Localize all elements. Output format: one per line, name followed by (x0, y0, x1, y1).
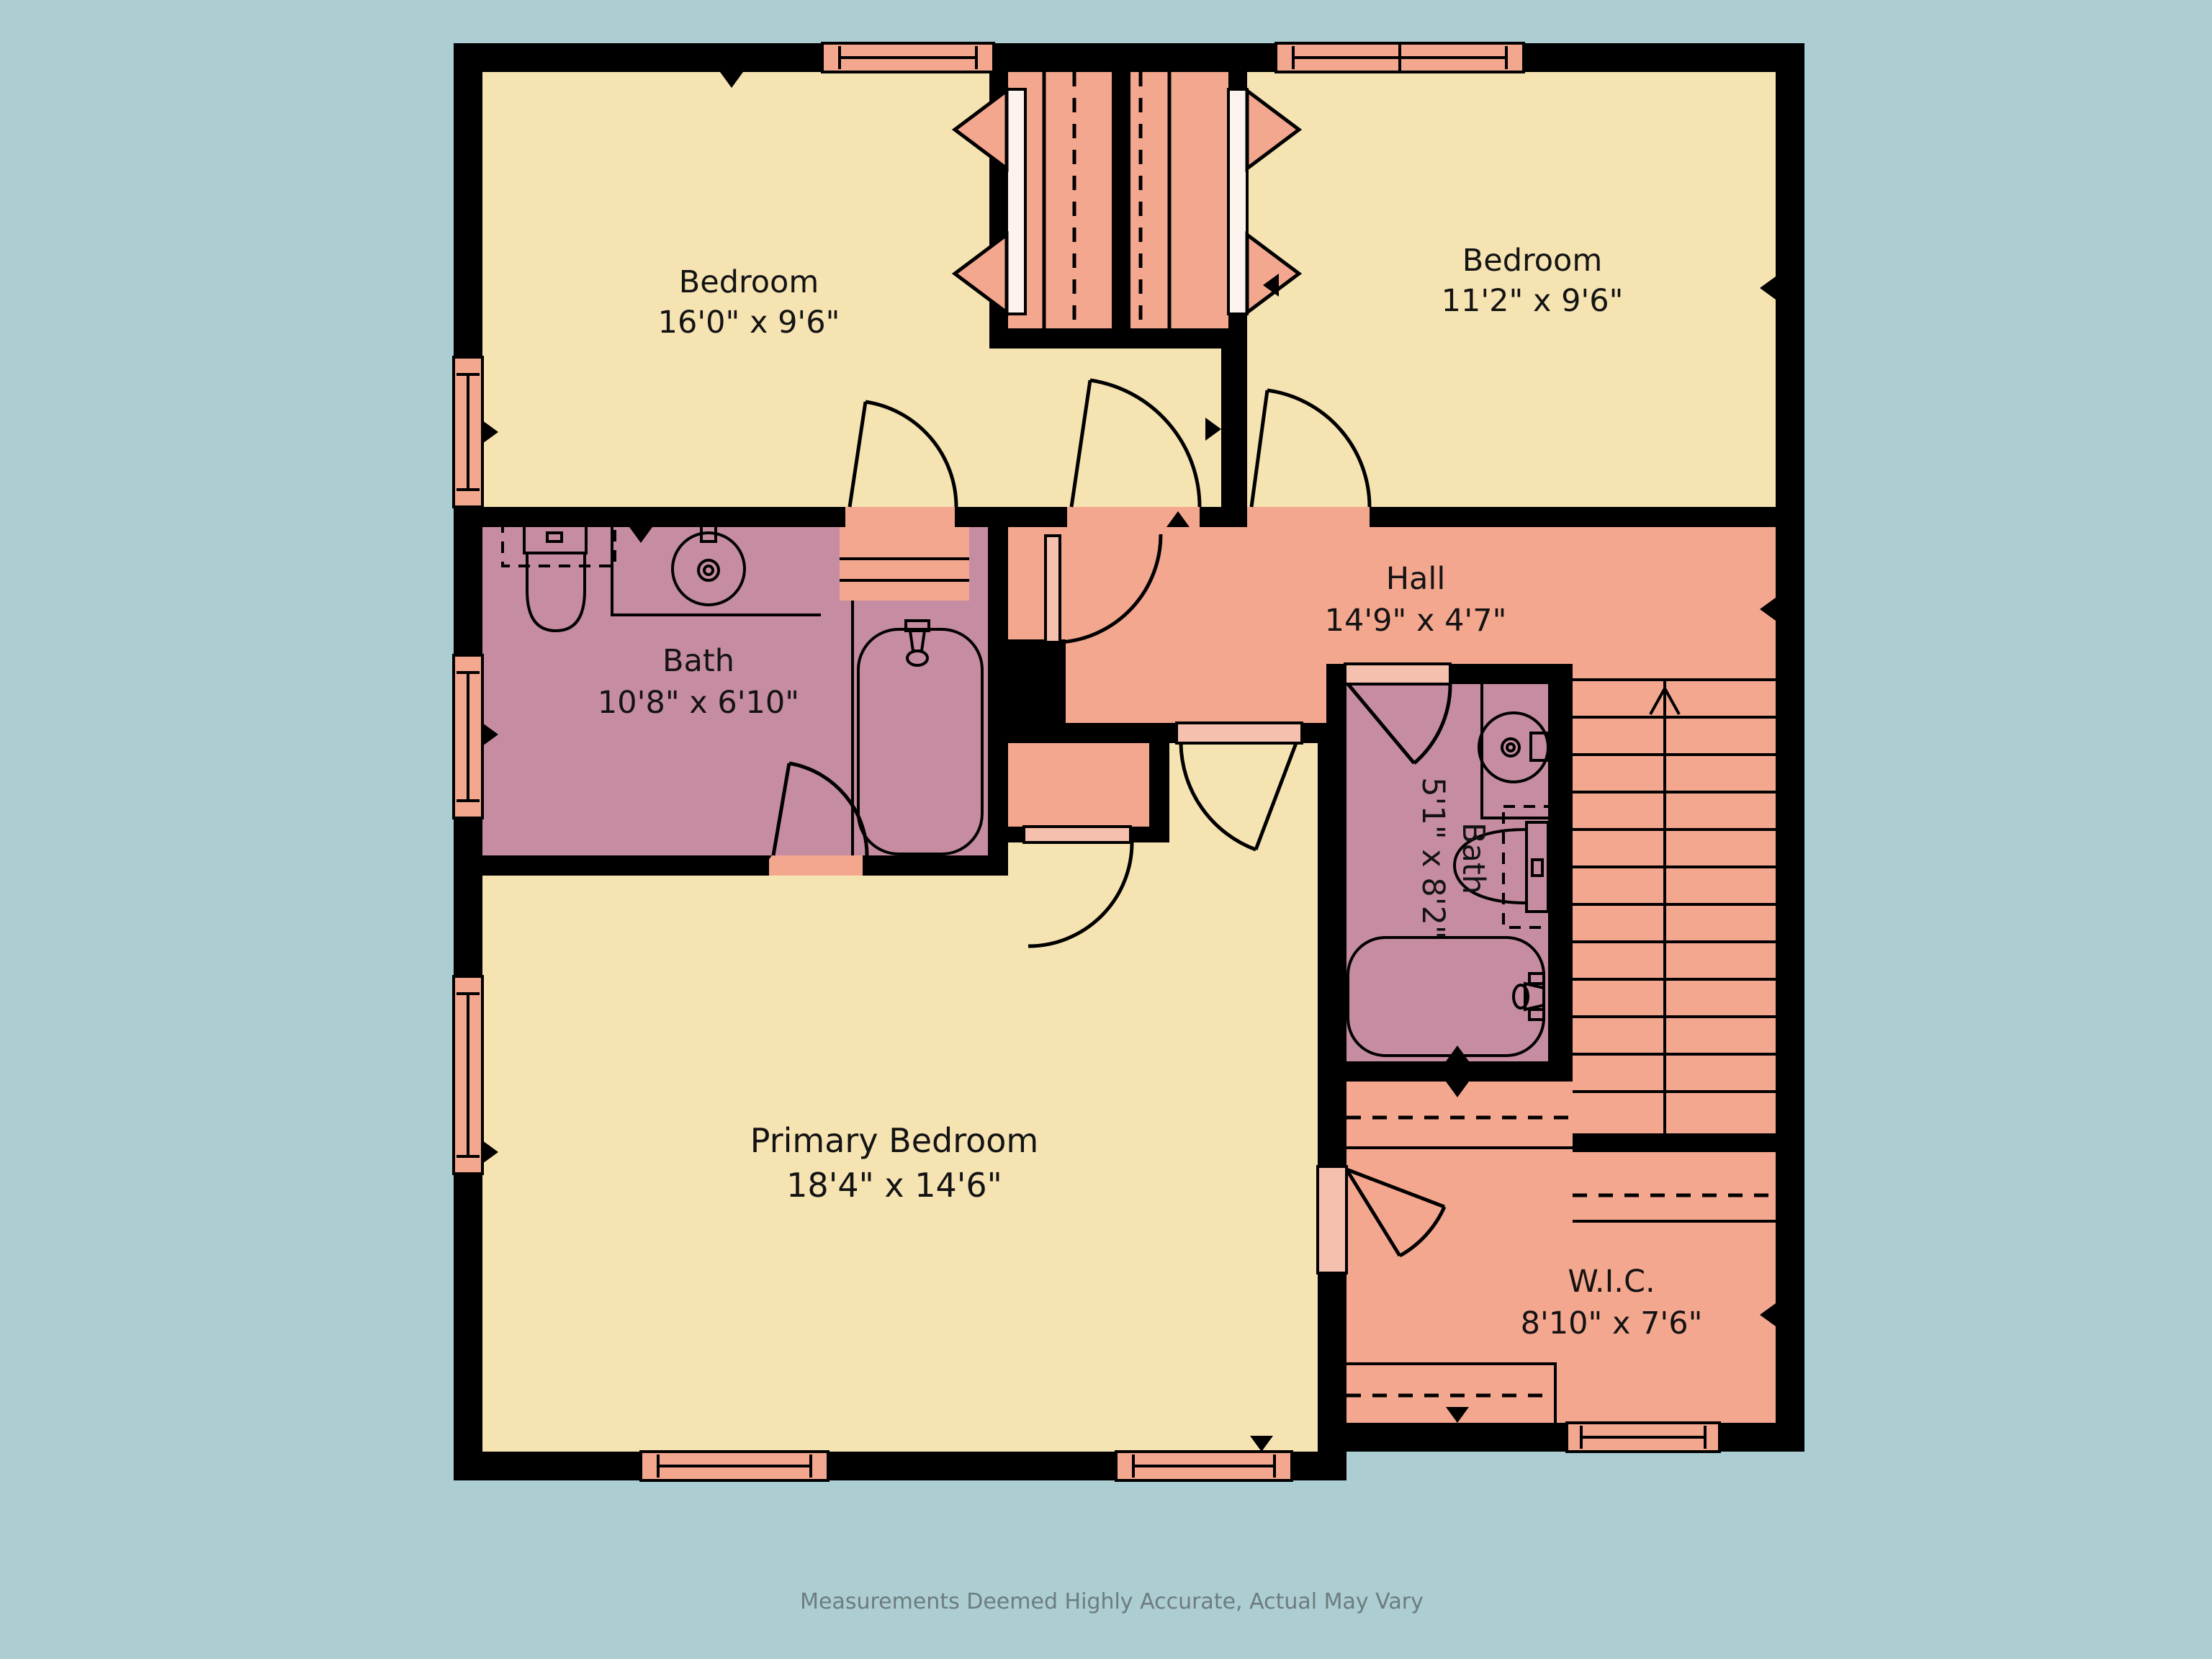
threshold-bath2 (1345, 664, 1450, 684)
closet-left-bifold-slab (1007, 89, 1025, 314)
bedroom-1-floor-strip (989, 349, 1221, 507)
wic-label: W.I.C. (1568, 1264, 1655, 1300)
primary-bedroom-floor-closet-front (1008, 842, 1169, 876)
bedroom-1-label: Bedroom (679, 264, 819, 300)
window-bottom-primary-2 (1116, 1452, 1292, 1480)
hall-floor-left (1066, 527, 1326, 723)
bath-2-dims: 5'1" x 8'2" (1415, 777, 1451, 939)
closet-right-floor (1130, 72, 1228, 328)
hall-label: Hall (1386, 561, 1446, 597)
bedroom-2-label: Bedroom (1462, 243, 1603, 279)
primary-bedroom-dims: 18'4" x 14'6" (786, 1166, 1002, 1205)
primary-bedroom-label: Primary Bedroom (750, 1121, 1038, 1160)
stairs-floor (1573, 664, 1776, 1133)
primary-closet-floor (1008, 743, 1149, 827)
window-left-bedroom1 (454, 357, 482, 507)
wic-dims: 8'10" x 7'6" (1521, 1305, 1703, 1341)
primary-bedroom-floor (482, 876, 1318, 1452)
threshold-primary-hall (1177, 723, 1302, 743)
bath-1-label: Bath (662, 643, 734, 679)
wic-floor (1346, 1082, 1573, 1423)
primary-bedroom-floor-nook (1169, 743, 1318, 876)
threshold-bedroom1-closet (845, 507, 955, 527)
threshold-bath1 (769, 855, 863, 876)
floor-plan: Bedroom 16'0" x 9'6" Bedroom 11'2" x 9'6… (0, 0, 2212, 1659)
bedroom-1-dims: 16'0" x 9'6" (658, 305, 840, 341)
primary-closet-door-leaf (1024, 827, 1130, 842)
window-top-bedroom1 (822, 43, 994, 72)
disclaimer-text: Measurements Deemed Highly Accurate, Act… (800, 1589, 1424, 1614)
threshold-wic (1318, 1166, 1346, 1273)
window-bottom-wic (1567, 1423, 1719, 1452)
linen-closet-floor (840, 527, 969, 601)
window-left-bath1 (454, 655, 482, 818)
window-top-bedroom2 (1276, 43, 1524, 72)
bath-2-label: Bath (1455, 822, 1491, 894)
hall-bath-door-leaf (1046, 536, 1060, 642)
bath-1-dims: 10'8" x 6'10" (598, 685, 799, 721)
closet-right-bifold-slab (1228, 89, 1247, 314)
hall-dims: 14'9" x 4'7" (1325, 603, 1507, 639)
threshold-bedroom2-hall (1247, 507, 1370, 527)
window-left-primary (454, 976, 482, 1174)
window-bottom-primary-1 (641, 1452, 828, 1480)
bedroom-2-dims: 11'2" x 9'6" (1442, 283, 1624, 319)
